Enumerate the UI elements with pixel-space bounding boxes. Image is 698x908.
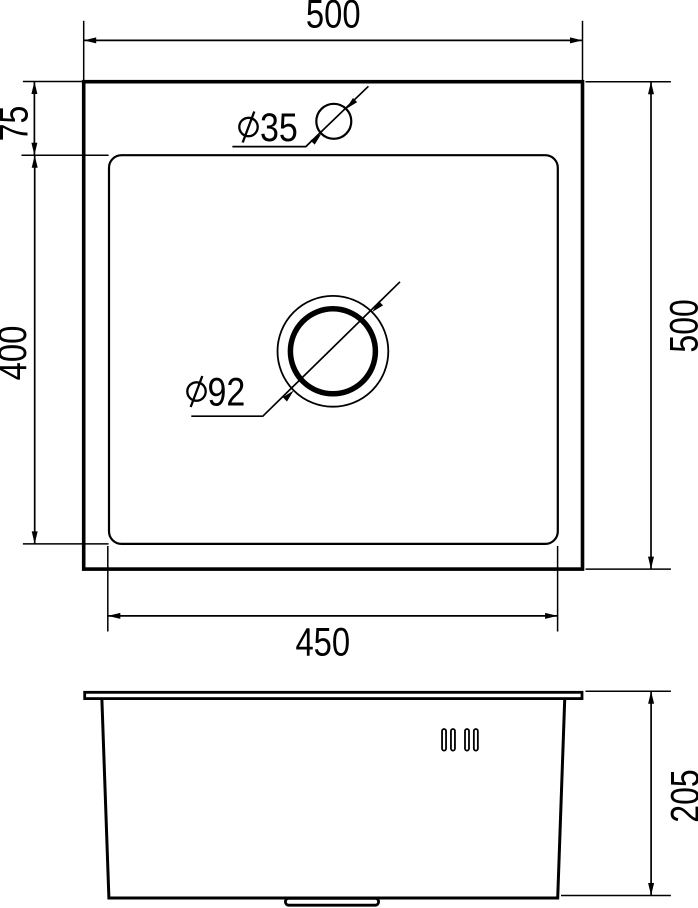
- svg-text:205: 205: [662, 769, 698, 822]
- svg-text:500: 500: [661, 299, 698, 352]
- svg-text:450: 450: [295, 619, 350, 664]
- svg-text:35: 35: [260, 104, 298, 149]
- svg-text:400: 400: [0, 326, 35, 381]
- svg-text:92: 92: [207, 369, 245, 414]
- svg-text:500: 500: [306, 0, 361, 36]
- svg-text:75: 75: [0, 106, 36, 142]
